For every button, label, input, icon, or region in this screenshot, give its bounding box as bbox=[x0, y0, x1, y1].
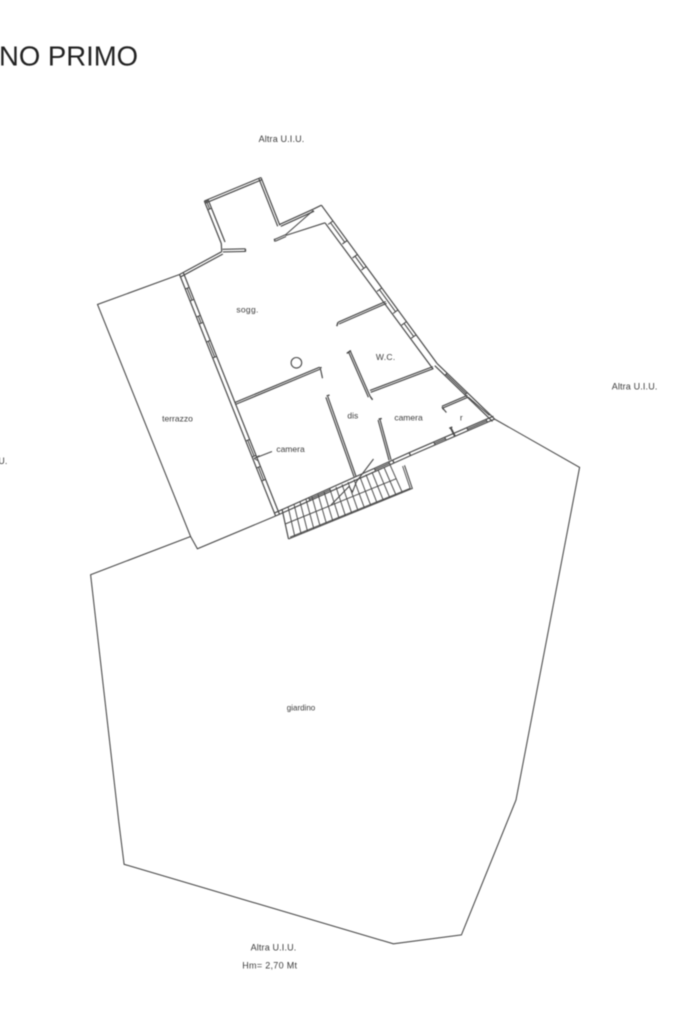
svg-text:Altra U.I.U.: Altra U.I.U. bbox=[259, 134, 305, 144]
svg-text:Altra U.I.U.: Altra U.I.U. bbox=[0, 456, 8, 466]
svg-text:camera: camera bbox=[276, 444, 305, 454]
svg-text:Altra U.I.U.: Altra U.I.U. bbox=[612, 382, 658, 392]
svg-text:terrazzo: terrazzo bbox=[162, 414, 193, 424]
svg-text:Altra U.I.U.: Altra U.I.U. bbox=[251, 943, 297, 953]
svg-text:W.C.: W.C. bbox=[376, 352, 396, 362]
svg-text:giardino: giardino bbox=[287, 704, 316, 713]
svg-text:NO PRIMO: NO PRIMO bbox=[0, 41, 138, 72]
svg-text:r: r bbox=[460, 413, 463, 423]
svg-text:sogg.: sogg. bbox=[236, 305, 258, 315]
svg-text:camera: camera bbox=[394, 412, 423, 422]
svg-text:dis: dis bbox=[347, 411, 358, 421]
svg-text:Hm= 2,70 Mt: Hm= 2,70 Mt bbox=[242, 961, 297, 971]
